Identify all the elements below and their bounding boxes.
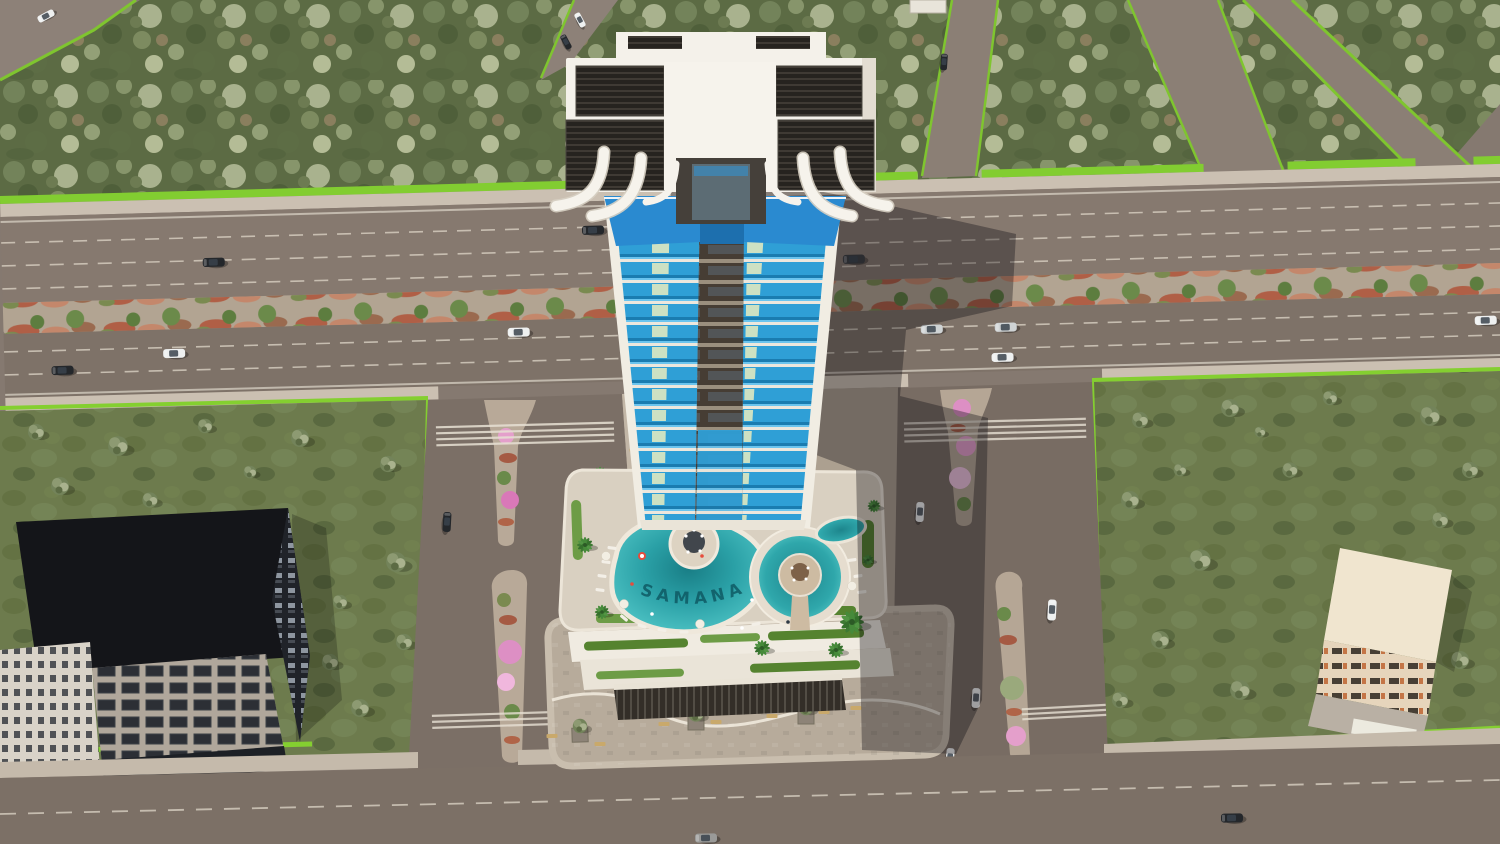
- car: [1475, 315, 1500, 326]
- tower-core-lower-glass: [696, 430, 742, 528]
- spa-bridge: [790, 596, 810, 630]
- solar-array: [576, 66, 664, 116]
- aerial-render-scene: SAMANA: [0, 0, 1500, 844]
- right-lot: [1092, 369, 1500, 760]
- solar-array: [628, 36, 682, 49]
- wing-windows: [0, 642, 100, 778]
- deck-panels: [92, 654, 284, 764]
- solar-array: [776, 66, 862, 116]
- pool-float-center: [640, 554, 644, 558]
- solar-array: [566, 120, 664, 190]
- right-lot-grass: [1092, 371, 1500, 760]
- island-bar: [683, 531, 705, 553]
- scene-canvas: SAMANA: [0, 0, 1500, 844]
- tower-base-strip: [640, 520, 806, 530]
- core-glass-glint: [694, 166, 748, 176]
- solar-array: [756, 36, 810, 49]
- left-lot: [0, 398, 428, 782]
- solar-array: [778, 120, 874, 190]
- small-structure: [910, 0, 946, 13]
